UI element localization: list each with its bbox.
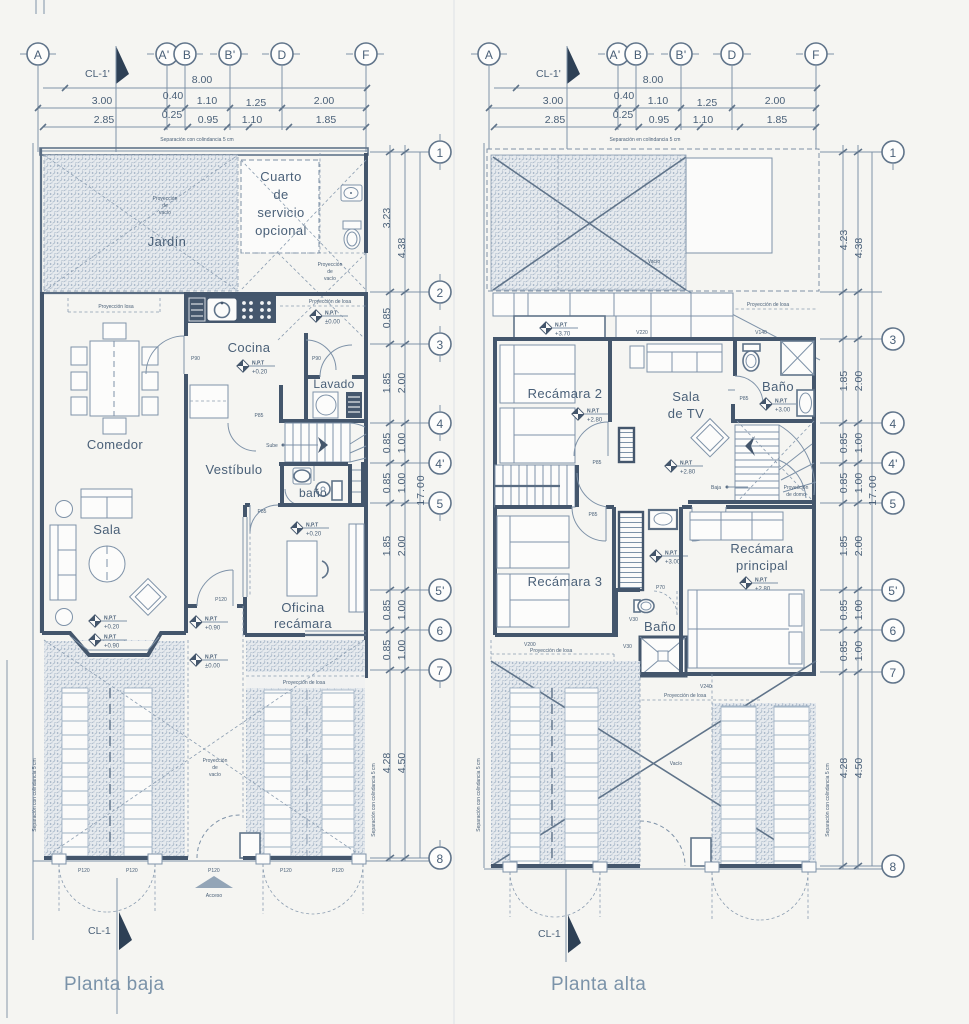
svg-text:CL-1': CL-1' (85, 68, 110, 80)
svg-text:N.P.T: N.P.T (104, 616, 116, 622)
svg-text:B: B (183, 48, 191, 62)
svg-text:4.50: 4.50 (853, 758, 865, 779)
svg-text:V30: V30 (629, 617, 638, 623)
svg-text:N.P.T: N.P.T (306, 523, 318, 529)
svg-text:D: D (728, 48, 737, 62)
svg-text:1.10: 1.10 (242, 114, 263, 126)
svg-text:8: 8 (890, 860, 897, 874)
svg-text:N.P.T: N.P.T (680, 461, 692, 467)
svg-text:0.85: 0.85 (838, 433, 850, 454)
svg-text:2.85: 2.85 (94, 114, 115, 126)
svg-text:V30: V30 (623, 644, 632, 650)
svg-text:1.85: 1.85 (381, 373, 393, 394)
svg-text:8.00: 8.00 (192, 74, 213, 86)
svg-text:de domo: de domo (786, 492, 806, 498)
svg-text:P85: P85 (593, 460, 602, 466)
svg-text:1: 1 (437, 146, 444, 160)
svg-text:recámara: recámara (274, 616, 332, 631)
svg-text:Vacío: Vacío (648, 259, 661, 265)
svg-text:2.00: 2.00 (396, 373, 408, 394)
svg-text:+0.20: +0.20 (252, 370, 268, 376)
svg-text:0.85: 0.85 (381, 308, 393, 329)
svg-text:+3.00: +3.00 (775, 408, 791, 414)
svg-text:+0.90: +0.90 (205, 626, 221, 632)
svg-text:N.P.T: N.P.T (587, 409, 599, 415)
svg-text:1.00: 1.00 (853, 433, 865, 454)
svg-text:Proyección: Proyección (203, 758, 228, 764)
svg-text:Proyección de losa: Proyección de losa (309, 299, 351, 305)
svg-text:Separación en colindancia 5: Separación en colindancia 5 cm (610, 137, 681, 143)
svg-text:P120: P120 (215, 597, 227, 603)
svg-text:N.P.T: N.P.T (555, 323, 567, 329)
svg-text:1.25: 1.25 (697, 97, 718, 109)
svg-text:1.85: 1.85 (316, 114, 337, 126)
svg-text:P90: P90 (191, 356, 200, 362)
svg-text:Proyección: Proyección (318, 262, 343, 268)
svg-text:F: F (362, 48, 370, 62)
svg-text:0.85: 0.85 (381, 473, 393, 494)
svg-text:Proyección losa: Proyección losa (98, 304, 134, 310)
svg-text:vacío: vacío (209, 772, 221, 778)
svg-text:7: 7 (437, 664, 444, 678)
svg-text:baño: baño (299, 486, 327, 500)
svg-text:Sala: Sala (93, 522, 121, 537)
svg-text:Oficina: Oficina (281, 600, 325, 615)
svg-text:A: A (485, 48, 493, 62)
svg-text:2.00: 2.00 (853, 371, 865, 392)
svg-text:0.85: 0.85 (838, 473, 850, 494)
svg-text:N.P.T: N.P.T (755, 578, 767, 584)
svg-text:+3.00: +3.00 (665, 560, 681, 566)
svg-text:4: 4 (437, 417, 444, 431)
svg-text:Sala: Sala (672, 389, 700, 404)
svg-text:Recámara 2: Recámara 2 (528, 386, 603, 401)
svg-text:1.85: 1.85 (767, 114, 788, 126)
svg-text:1.85: 1.85 (838, 536, 850, 557)
svg-text:4.28: 4.28 (838, 758, 850, 779)
svg-text:Planta baja: Planta baja (64, 974, 165, 995)
svg-text:P120: P120 (78, 868, 90, 874)
svg-text:Lavado: Lavado (313, 377, 354, 391)
svg-text:A: A (34, 48, 42, 62)
svg-text:B: B (634, 48, 642, 62)
svg-text:7: 7 (890, 666, 897, 680)
svg-text:F: F (812, 48, 820, 62)
svg-text:N.P.T: N.P.T (205, 617, 217, 623)
svg-text:1.10: 1.10 (693, 114, 714, 126)
svg-text:2: 2 (437, 286, 444, 300)
svg-text:2.00: 2.00 (314, 95, 335, 107)
svg-text:P120: P120 (332, 868, 344, 874)
svg-text:de: de (327, 269, 333, 275)
svg-text:P70: P70 (656, 585, 665, 591)
svg-text:17.00: 17.00 (867, 474, 879, 505)
svg-text:Proyección: Proyección (784, 485, 809, 491)
svg-text:5': 5' (888, 584, 898, 598)
svg-text:8: 8 (437, 852, 444, 866)
svg-text:Acceso: Acceso (206, 893, 223, 899)
svg-text:2.00: 2.00 (853, 536, 865, 557)
svg-text:6: 6 (437, 624, 444, 638)
svg-text:A': A' (610, 48, 621, 62)
svg-text:1.00: 1.00 (853, 641, 865, 662)
svg-text:de: de (212, 765, 218, 771)
svg-text:0.95: 0.95 (649, 114, 670, 126)
svg-text:17.00: 17.00 (415, 474, 427, 505)
svg-text:servicio: servicio (257, 205, 304, 220)
svg-text:4': 4' (435, 457, 445, 471)
svg-text:P85: P85 (589, 512, 598, 518)
svg-text:P90: P90 (312, 356, 321, 362)
svg-text:6: 6 (890, 624, 897, 638)
svg-text:0.85: 0.85 (381, 600, 393, 621)
svg-text:+0.90: +0.90 (104, 644, 120, 650)
svg-text:5': 5' (435, 584, 445, 598)
svg-text:Cuarto: Cuarto (260, 169, 301, 184)
svg-text:N.P.T: N.P.T (104, 635, 116, 641)
svg-text:0.95: 0.95 (198, 114, 219, 126)
svg-text:+0.20: +0.20 (306, 532, 322, 538)
svg-text:Baja: Baja (711, 485, 721, 491)
svg-text:1.00: 1.00 (396, 473, 408, 494)
svg-text:0.40: 0.40 (163, 90, 184, 102)
svg-text:Separación con colindancia: Separación con colindancia 5 cm (476, 758, 482, 831)
svg-text:Recámara 3: Recámara 3 (528, 574, 603, 589)
svg-text:0.40: 0.40 (614, 90, 635, 102)
svg-text:1.25: 1.25 (246, 97, 267, 109)
svg-text:P85: P85 (255, 413, 264, 419)
svg-text:4.28: 4.28 (381, 753, 393, 774)
svg-text:0.25: 0.25 (613, 109, 634, 121)
svg-text:4.38: 4.38 (853, 238, 865, 259)
svg-text:+3.70: +3.70 (555, 332, 571, 338)
svg-text:de TV: de TV (668, 406, 704, 421)
svg-text:N.P.T: N.P.T (325, 311, 337, 317)
svg-text:Separación con colindancia: Separación con colindancia 5 cm (32, 758, 38, 831)
svg-text:1.00: 1.00 (396, 433, 408, 454)
svg-text:1.85: 1.85 (838, 371, 850, 392)
svg-text:5: 5 (890, 497, 897, 511)
svg-text:V240: V240 (700, 684, 712, 690)
svg-text:4.23: 4.23 (838, 230, 850, 251)
svg-text:B': B' (676, 48, 687, 62)
svg-text:CL-1: CL-1 (538, 928, 561, 940)
svg-text:vacío: vacío (159, 210, 171, 216)
svg-text:1.10: 1.10 (648, 95, 669, 107)
svg-text:1.10: 1.10 (197, 95, 218, 107)
svg-text:4: 4 (890, 417, 897, 431)
svg-text:0.85: 0.85 (381, 640, 393, 661)
svg-text:N.P.T: N.P.T (205, 655, 217, 661)
svg-text:0.85: 0.85 (381, 433, 393, 454)
svg-text:N.P.T: N.P.T (252, 361, 264, 367)
svg-text:Vacío: Vacío (670, 761, 683, 767)
svg-text:Planta alta: Planta alta (551, 974, 646, 995)
svg-text:±0.00: ±0.00 (325, 320, 341, 326)
svg-text:3.00: 3.00 (92, 95, 113, 107)
svg-text:Proyección de losa: Proyección de losa (530, 648, 572, 654)
svg-text:2.00: 2.00 (765, 95, 786, 107)
svg-text:N.P.T: N.P.T (775, 399, 787, 405)
svg-text:Vestíbulo: Vestíbulo (205, 462, 262, 477)
svg-text:3: 3 (890, 333, 897, 347)
svg-text:1: 1 (890, 146, 897, 160)
svg-text:3.00: 3.00 (543, 95, 564, 107)
svg-text:Comedor: Comedor (87, 437, 144, 452)
svg-text:P120: P120 (208, 868, 220, 874)
svg-text:8.00: 8.00 (643, 74, 664, 86)
svg-text:2.00: 2.00 (396, 536, 408, 557)
svg-text:1.85: 1.85 (381, 536, 393, 557)
svg-text:Recámara: Recámara (730, 541, 794, 556)
svg-text:0.25: 0.25 (162, 109, 183, 121)
svg-text:4': 4' (888, 457, 898, 471)
svg-text:0.85: 0.85 (838, 600, 850, 621)
svg-text:0.85: 0.85 (838, 641, 850, 662)
svg-text:4.50: 4.50 (396, 753, 408, 774)
svg-text:Separación con colindancia: Separación con colindancia 5 cm (160, 137, 233, 143)
svg-text:+2.80: +2.80 (680, 470, 696, 476)
svg-text:V140: V140 (755, 330, 767, 336)
svg-text:3: 3 (437, 338, 444, 352)
svg-text:±0.00: ±0.00 (205, 664, 221, 670)
svg-text:B': B' (225, 48, 236, 62)
svg-text:Separación con colindancia: Separación con colindancia 5 cm (371, 763, 377, 836)
svg-text:de: de (162, 203, 168, 209)
svg-text:principal: principal (736, 558, 788, 573)
svg-text:Sube: Sube (266, 443, 278, 449)
svg-text:1.00: 1.00 (853, 600, 865, 621)
svg-text:1.00: 1.00 (853, 473, 865, 494)
svg-text:D: D (278, 48, 287, 62)
svg-text:P85: P85 (740, 396, 749, 402)
svg-text:Proyección de losa: Proyección de losa (747, 302, 789, 308)
svg-text:2.85: 2.85 (545, 114, 566, 126)
svg-text:P120: P120 (280, 868, 292, 874)
svg-text:CL-1': CL-1' (536, 68, 561, 80)
svg-text:5: 5 (437, 497, 444, 511)
svg-text:4.38: 4.38 (396, 238, 408, 259)
svg-text:de: de (273, 187, 288, 202)
svg-text:vacío: vacío (324, 276, 336, 282)
svg-text:1.00: 1.00 (396, 640, 408, 661)
svg-text:P120: P120 (126, 868, 138, 874)
svg-text:Baño: Baño (644, 619, 676, 634)
svg-text:Jardín: Jardín (148, 234, 187, 249)
svg-text:Proyección: Proyección (153, 196, 178, 202)
svg-text:V220: V220 (636, 330, 648, 336)
svg-text:N.P.T: N.P.T (665, 551, 677, 557)
svg-text:Cocina: Cocina (228, 340, 271, 355)
svg-text:Proyección de losa: Proyección de losa (664, 693, 706, 699)
svg-text:A': A' (159, 48, 170, 62)
svg-text:CL-1: CL-1 (88, 925, 111, 937)
svg-text:Separación con colindancia: Separación con colindancia 5 cm (825, 763, 831, 836)
svg-text:Baño: Baño (762, 379, 794, 394)
svg-text:opcional: opcional (255, 223, 307, 238)
svg-text:3.23: 3.23 (381, 208, 393, 229)
svg-text:+0.20: +0.20 (104, 625, 120, 631)
svg-text:1.00: 1.00 (396, 600, 408, 621)
